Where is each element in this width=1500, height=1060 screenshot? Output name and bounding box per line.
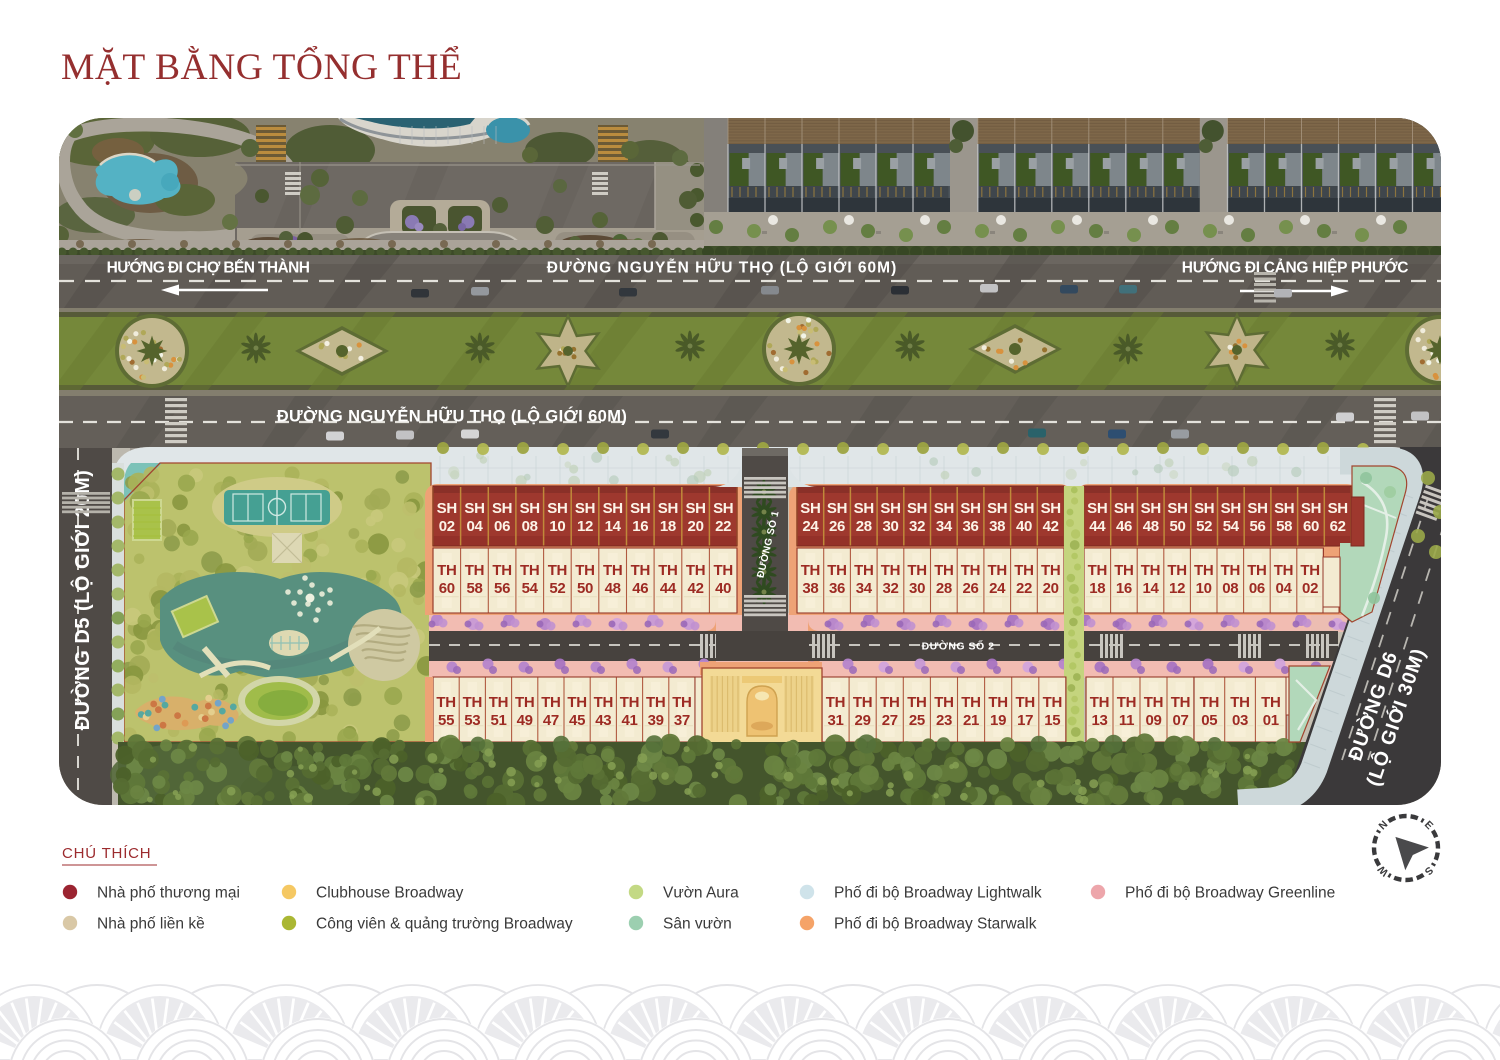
svg-text:SH: SH [827,500,847,517]
svg-text:40: 40 [1016,518,1032,535]
svg-text:22: 22 [1016,580,1032,597]
svg-text:TH: TH [1171,694,1190,711]
svg-text:10: 10 [1196,580,1212,597]
svg-text:HƯỚNG ĐI CẢNG HIỆP PHƯỚC: HƯỚNG ĐI CẢNG HIỆP PHƯỚC [1182,259,1408,277]
svg-text:62: 62 [1330,518,1346,535]
svg-text:30: 30 [909,580,925,597]
svg-text:Nhà phố liền kề: Nhà phố liền kề [97,916,205,933]
svg-text:01: 01 [1263,712,1279,729]
svg-text:SH: SH [960,500,980,517]
svg-text:10: 10 [549,518,565,535]
svg-text:02: 02 [1302,580,1318,597]
svg-text:52: 52 [549,580,565,597]
svg-text:04: 04 [1275,580,1292,597]
svg-text:TH: TH [520,562,539,579]
svg-text:34: 34 [936,518,953,535]
svg-text:ĐƯỜNG NGUYỄN HỮU THỌ (LỘ GIỚI: ĐƯỜNG NGUYỄN HỮU THỌ (LỘ GIỚI 60M) [277,406,628,426]
svg-text:TH: TH [489,694,508,711]
svg-text:SH: SH [800,500,820,517]
svg-text:44: 44 [1089,518,1106,535]
svg-text:43: 43 [595,712,611,729]
svg-text:Phố đi bộ Broadway Starwalk: Phố đi bộ Broadway Starwalk [834,916,1037,933]
svg-text:31: 31 [827,712,843,729]
svg-text:TH: TH [575,562,594,579]
svg-text:16: 16 [1116,580,1132,597]
svg-text:13: 13 [1091,712,1107,729]
svg-text:SH: SH [1301,500,1321,517]
svg-text:SH: SH [987,500,1007,517]
svg-text:39: 39 [648,712,664,729]
svg-text:TH: TH [907,562,926,579]
svg-text:SH: SH [1221,500,1241,517]
svg-text:56: 56 [1249,518,1265,535]
svg-text:SH: SH [520,500,540,517]
svg-text:SH: SH [1194,500,1214,517]
svg-text:02: 02 [439,518,455,535]
svg-text:SH: SH [1247,500,1267,517]
svg-text:TH: TH [713,562,732,579]
svg-text:SH: SH [547,500,567,517]
svg-text:TH: TH [1261,694,1280,711]
svg-text:TH: TH [437,562,456,579]
svg-text:SH: SH [854,500,874,517]
svg-text:18: 18 [660,518,676,535]
svg-text:TH: TH [492,562,511,579]
svg-text:Vườn Aura: Vườn Aura [663,885,739,902]
svg-text:TH: TH [1015,694,1034,711]
svg-text:51: 51 [490,712,506,729]
svg-text:SH: SH [1141,500,1161,517]
svg-text:52: 52 [1196,518,1212,535]
svg-text:06: 06 [494,518,510,535]
svg-text:TH: TH [672,694,691,711]
svg-text:TH: TH [881,562,900,579]
svg-text:44: 44 [660,580,677,597]
svg-text:36: 36 [962,518,978,535]
svg-text:TH: TH [988,694,1007,711]
svg-text:41: 41 [621,712,637,729]
svg-text:TH: TH [801,562,820,579]
svg-text:36: 36 [829,580,845,597]
svg-text:55: 55 [438,712,454,729]
svg-text:TH: TH [567,694,586,711]
svg-text:SH: SH [437,500,457,517]
svg-text:48: 48 [605,580,621,597]
svg-text:24: 24 [802,518,819,535]
svg-text:SH: SH [464,500,484,517]
svg-text:05: 05 [1201,712,1217,729]
svg-text:TH: TH [1300,562,1319,579]
svg-text:TH: TH [1088,562,1107,579]
svg-text:TH: TH [603,562,622,579]
svg-text:18: 18 [1089,580,1105,597]
svg-text:ĐƯỜNG NGUYỄN HỮU THỌ (LỘ GIỚI: ĐƯỜNG NGUYỄN HỮU THỌ (LỘ GIỚI 60M) [547,259,898,277]
svg-text:38: 38 [802,580,818,597]
svg-text:TH: TH [1274,562,1293,579]
svg-text:20: 20 [688,518,704,535]
svg-text:SH: SH [1328,500,1348,517]
svg-text:TH: TH [987,562,1006,579]
svg-text:12: 12 [1169,580,1185,597]
svg-text:42: 42 [1043,518,1059,535]
svg-text:SH: SH [1041,500,1061,517]
svg-text:SH: SH [1014,500,1034,517]
svg-text:30: 30 [882,518,898,535]
svg-text:SH: SH [880,500,900,517]
svg-text:TH: TH [1247,562,1266,579]
svg-text:03: 03 [1232,712,1248,729]
svg-text:Clubhouse Broadway: Clubhouse Broadway [316,885,464,902]
svg-text:50: 50 [1169,518,1185,535]
svg-text:Phố đi bộ Broadway Lightwalk: Phố đi bộ Broadway Lightwalk [834,885,1042,902]
svg-text:29: 29 [855,712,871,729]
svg-text:SH: SH [934,500,954,517]
svg-text:MẶT BẰNG TỔNG THỂ: MẶT BẰNG TỔNG THỂ [61,45,462,88]
svg-text:46: 46 [1116,518,1132,535]
svg-text:56: 56 [494,580,510,597]
svg-text:11: 11 [1119,712,1134,729]
svg-text:08: 08 [522,518,538,535]
svg-text:TH: TH [907,694,926,711]
svg-text:23: 23 [936,712,952,729]
svg-text:16: 16 [632,518,648,535]
svg-text:SH: SH [1274,500,1294,517]
svg-text:SH: SH [685,500,705,517]
svg-text:TH: TH [961,694,980,711]
svg-text:TH: TH [853,694,872,711]
svg-text:TH: TH [1141,562,1160,579]
svg-text:TH: TH [686,562,705,579]
svg-text:TH: TH [465,562,484,579]
svg-text:26: 26 [962,580,978,597]
svg-text:14: 14 [605,518,622,535]
svg-text:32: 32 [909,518,925,535]
svg-text:Sân vườn: Sân vườn [663,916,732,933]
svg-text:07: 07 [1172,712,1188,729]
svg-text:46: 46 [632,580,648,597]
svg-text:TH: TH [934,694,953,711]
svg-text:CHÚ THÍCH: CHÚ THÍCH [62,845,151,862]
svg-text:ĐƯỜNG SỐ 2: ĐƯỜNG SỐ 2 [922,639,995,653]
svg-text:28: 28 [856,518,872,535]
svg-text:SH: SH [603,500,623,517]
svg-text:08: 08 [1222,580,1238,597]
svg-text:TH: TH [1117,694,1136,711]
svg-text:42: 42 [688,580,704,597]
svg-text:06: 06 [1249,580,1265,597]
svg-text:TH: TH [1200,694,1219,711]
svg-text:54: 54 [522,580,539,597]
svg-text:26: 26 [829,518,845,535]
svg-text:SH: SH [492,500,512,517]
svg-text:SH: SH [1167,500,1187,517]
svg-text:TH: TH [658,562,677,579]
svg-text:24: 24 [989,580,1006,597]
svg-text:38: 38 [989,518,1005,535]
svg-text:TH: TH [1041,562,1060,579]
svg-text:SH: SH [1087,500,1107,517]
svg-text:58: 58 [1276,518,1292,535]
svg-text:S: S [1422,864,1435,877]
svg-text:TH: TH [1221,562,1240,579]
svg-text:54: 54 [1223,518,1240,535]
svg-text:28: 28 [936,580,952,597]
svg-text:34: 34 [856,580,873,597]
svg-text:TH: TH [934,562,953,579]
svg-text:20: 20 [1043,580,1059,597]
svg-text:Công viên & quảng trường Broad: Công viên & quảng trường Broadway [316,916,573,933]
svg-text:TH: TH [854,562,873,579]
svg-text:45: 45 [569,712,585,729]
svg-text:TH: TH [620,694,639,711]
svg-text:TH: TH [541,694,560,711]
svg-text:TH: TH [961,562,980,579]
svg-text:SH: SH [575,500,595,517]
svg-text:TH: TH [1194,562,1213,579]
svg-text:TH: TH [1144,694,1163,711]
svg-text:14: 14 [1142,580,1159,597]
svg-text:TH: TH [1167,562,1186,579]
svg-text:19: 19 [990,712,1006,729]
svg-text:58: 58 [466,580,482,597]
svg-text:22: 22 [715,518,731,535]
svg-text:53: 53 [464,712,480,729]
svg-text:17: 17 [1017,712,1033,729]
svg-text:SH: SH [907,500,927,517]
svg-text:TH: TH [1014,562,1033,579]
svg-text:Nhà phố thương mại: Nhà phố thương mại [97,885,240,902]
svg-text:TH: TH [515,694,534,711]
svg-text:TH: TH [1230,694,1249,711]
svg-text:TH: TH [1114,562,1133,579]
svg-text:60: 60 [439,580,455,597]
svg-text:TH: TH [827,562,846,579]
svg-text:48: 48 [1143,518,1159,535]
svg-text:49: 49 [517,712,533,729]
svg-text:TH: TH [1043,694,1062,711]
svg-text:HƯỚNG ĐI CHỢ BẾN THÀNH: HƯỚNG ĐI CHỢ BẾN THÀNH [107,259,310,277]
svg-text:47: 47 [543,712,559,729]
svg-text:09: 09 [1145,712,1161,729]
svg-text:TH: TH [548,562,567,579]
svg-text:SH: SH [658,500,678,517]
svg-text:40: 40 [715,580,731,597]
svg-text:SH: SH [1114,500,1134,517]
svg-text:E: E [1422,819,1435,832]
svg-text:TH: TH [631,562,650,579]
svg-text:32: 32 [882,580,898,597]
svg-text:25: 25 [909,712,925,729]
svg-text:37: 37 [674,712,690,729]
svg-text:04: 04 [466,518,483,535]
svg-text:TH: TH [594,694,613,711]
svg-text:12: 12 [577,518,593,535]
svg-text:TH: TH [1090,694,1109,711]
svg-text:50: 50 [577,580,593,597]
svg-text:21: 21 [963,712,979,729]
svg-text:TH: TH [646,694,665,711]
svg-text:TH: TH [880,694,899,711]
svg-text:ĐƯỜNG D5 (LỘ GIỚI 20M): ĐƯỜNG D5 (LỘ GIỚI 20M) [70,470,94,731]
svg-text:TH: TH [463,694,482,711]
svg-text:Phố đi bộ Broadway Greenline: Phố đi bộ Broadway Greenline [1125,885,1335,902]
svg-text:TH: TH [826,694,845,711]
svg-text:60: 60 [1303,518,1319,535]
svg-text:SH: SH [713,500,733,517]
svg-text:TH: TH [436,694,455,711]
svg-text:SH: SH [630,500,650,517]
svg-text:27: 27 [882,712,898,729]
svg-text:15: 15 [1044,712,1060,729]
